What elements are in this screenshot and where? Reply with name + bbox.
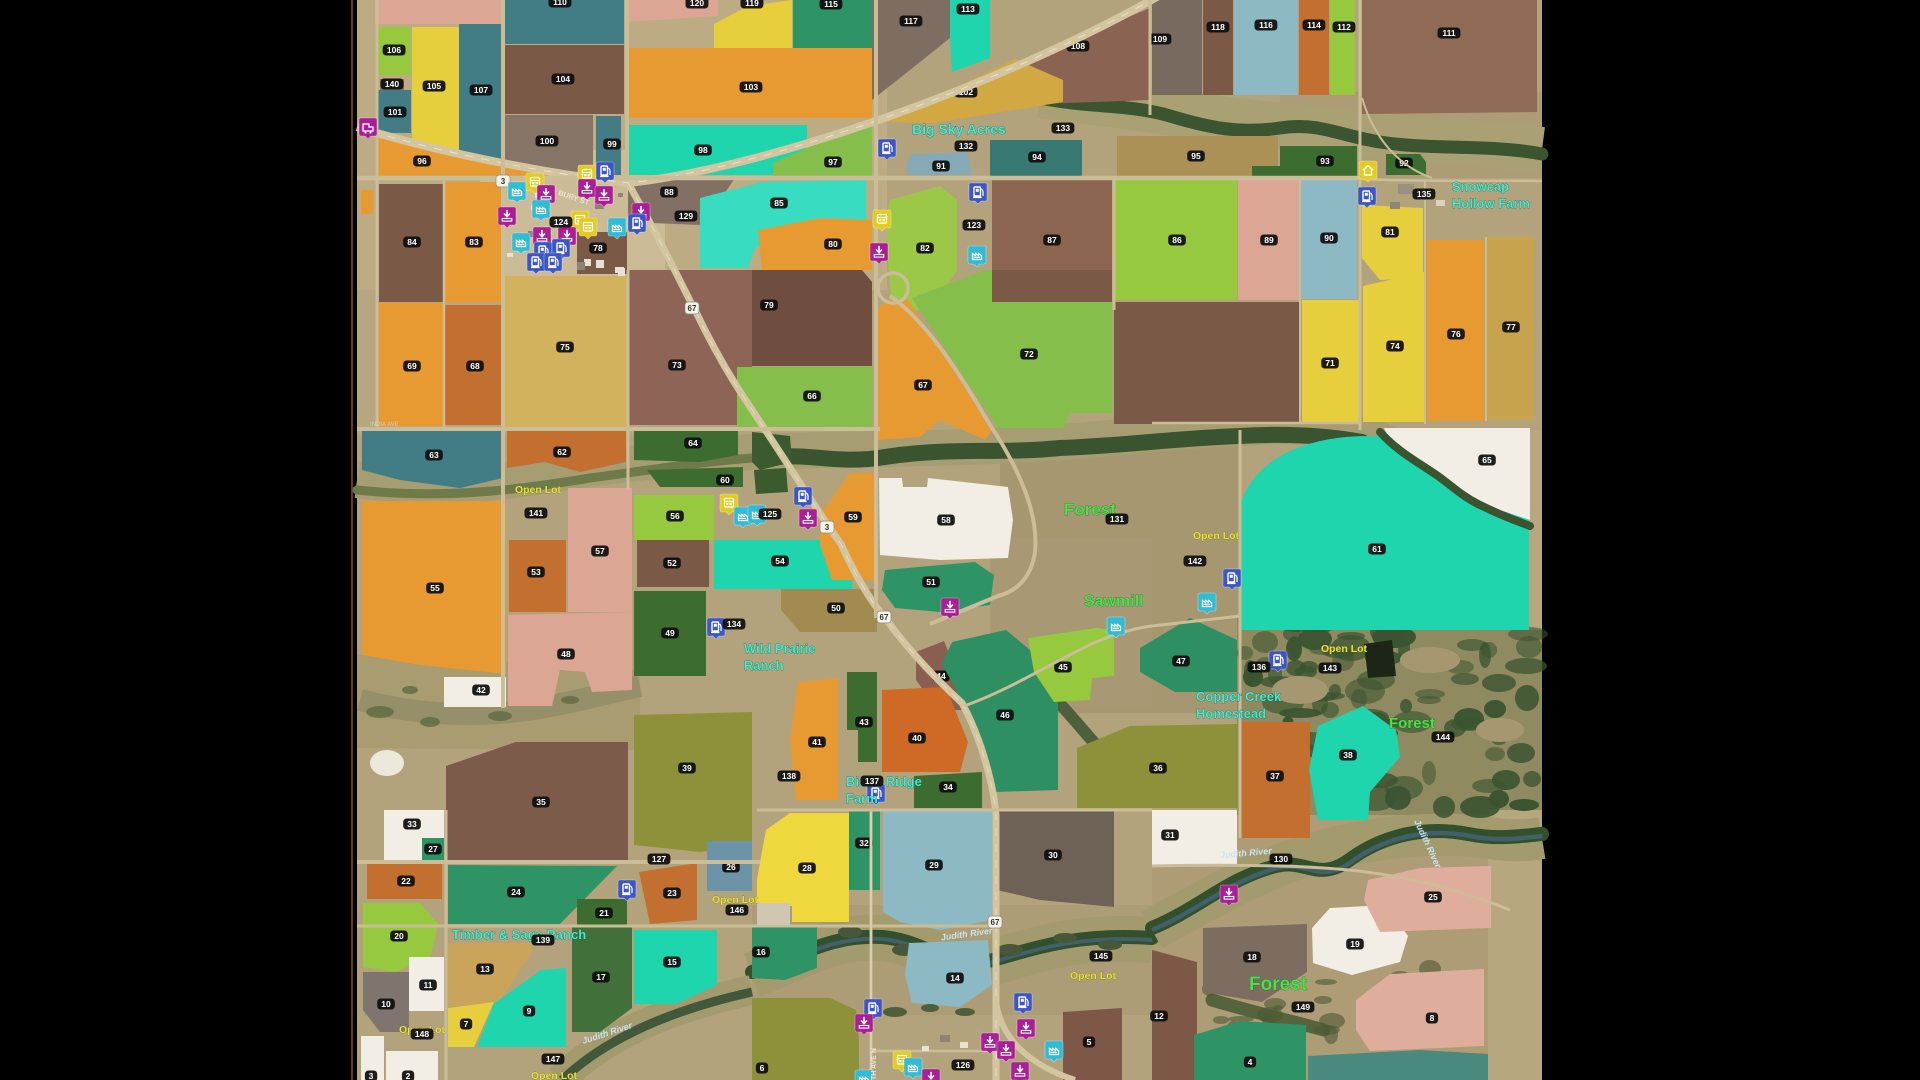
svg-text:120: 120 [690,0,704,8]
svg-text:80: 80 [828,239,838,249]
svg-text:52: 52 [667,558,677,568]
svg-text:83: 83 [469,237,479,247]
svg-text:65: 65 [1482,455,1492,465]
svg-text:132: 132 [959,141,973,151]
svg-text:35: 35 [536,797,546,807]
svg-text:138: 138 [782,771,796,781]
svg-text:149: 149 [1296,1002,1310,1012]
svg-text:22: 22 [401,876,411,886]
svg-text:45: 45 [1058,662,1068,672]
svg-text:76: 76 [1451,329,1461,339]
svg-text:69: 69 [407,361,417,371]
svg-text:25: 25 [1428,892,1438,902]
svg-text:134: 134 [727,619,741,629]
svg-text:3: 3 [501,177,506,186]
svg-text:133: 133 [1056,123,1070,133]
svg-text:82: 82 [920,243,930,253]
svg-text:74: 74 [1390,341,1400,351]
svg-text:62: 62 [557,447,567,457]
svg-text:Open Lot: Open Lot [515,484,562,496]
svg-text:Wild Prairie: Wild Prairie [744,641,815,656]
svg-text:28: 28 [802,863,812,873]
svg-text:11: 11 [424,980,433,990]
svg-text:18: 18 [1247,952,1257,962]
svg-text:81: 81 [1385,227,1395,237]
svg-text:106: 106 [387,45,401,55]
svg-text:85: 85 [774,198,784,208]
svg-text:33: 33 [407,819,417,829]
svg-text:126: 126 [956,1060,970,1070]
svg-text:5: 5 [1087,1037,1092,1047]
svg-text:61: 61 [1372,544,1382,554]
svg-text:42: 42 [476,685,486,695]
svg-text:Bison Ridge: Bison Ridge [846,774,922,789]
svg-text:64: 64 [688,438,698,448]
svg-text:Open Lot: Open Lot [1321,643,1368,655]
svg-text:23: 23 [667,888,677,898]
svg-text:4TH AVE N: 4TH AVE N [871,1048,878,1080]
svg-text:6: 6 [760,1063,765,1073]
svg-text:Forest: Forest [1249,974,1308,995]
svg-text:36: 36 [1153,763,1163,773]
svg-text:93: 93 [1320,156,1330,166]
svg-text:30: 30 [1048,850,1058,860]
svg-text:Sawmill: Sawmill [1084,593,1144,610]
svg-text:94: 94 [1032,152,1042,162]
svg-text:145: 145 [1094,951,1108,961]
svg-text:39: 39 [682,763,692,773]
svg-text:67: 67 [688,304,697,313]
svg-text:31: 31 [1165,830,1175,840]
svg-text:4: 4 [1248,1057,1253,1067]
svg-text:3: 3 [825,523,830,532]
svg-text:27: 27 [428,844,438,854]
svg-text:115: 115 [824,0,838,9]
svg-text:16: 16 [756,947,766,957]
svg-text:141: 141 [529,508,543,518]
svg-text:129: 129 [679,211,693,221]
svg-text:13: 13 [480,964,490,974]
svg-text:49: 49 [665,628,675,638]
svg-text:43: 43 [859,717,869,727]
svg-text:67: 67 [991,918,1000,927]
svg-text:Open Lot: Open Lot [1193,530,1240,542]
svg-text:100: 100 [540,136,554,146]
svg-text:68: 68 [470,361,480,371]
svg-text:98: 98 [698,145,708,155]
svg-text:71: 71 [1325,358,1335,368]
svg-text:Forest: Forest [1389,715,1435,732]
svg-text:148: 148 [415,1029,429,1039]
svg-text:84: 84 [407,237,417,247]
svg-text:105: 105 [427,81,441,91]
svg-text:124: 124 [554,217,568,227]
svg-text:Ranch: Ranch [744,658,784,673]
svg-text:107: 107 [474,85,488,95]
svg-text:58: 58 [941,515,951,525]
svg-text:15: 15 [667,957,677,967]
svg-text:110: 110 [553,0,567,7]
svg-text:47: 47 [1176,656,1186,666]
svg-text:21: 21 [599,908,609,918]
svg-text:67: 67 [918,380,928,390]
svg-text:57: 57 [595,546,605,556]
svg-text:103: 103 [744,82,758,92]
svg-text:104: 104 [556,74,570,84]
svg-text:12: 12 [1154,1011,1164,1021]
svg-text:46: 46 [1000,710,1010,720]
svg-text:34: 34 [943,782,953,792]
svg-text:INDIA AVE: INDIA AVE [370,422,399,428]
svg-text:137: 137 [865,776,879,786]
svg-text:114: 114 [1307,20,1321,30]
svg-text:Open Lot: Open Lot [531,1070,578,1080]
svg-text:Farm: Farm [846,791,878,806]
svg-text:79: 79 [764,300,774,310]
svg-text:135: 135 [1417,189,1431,199]
svg-text:116: 116 [1259,20,1273,30]
svg-text:96: 96 [417,156,427,166]
svg-text:Timber & Sage Ranch: Timber & Sage Ranch [452,927,586,942]
svg-text:97: 97 [828,157,838,167]
svg-text:117: 117 [904,16,918,26]
svg-text:72: 72 [1024,349,1034,359]
svg-text:78: 78 [593,243,603,253]
svg-text:51: 51 [926,577,936,587]
svg-text:131: 131 [1110,514,1124,524]
svg-text:37: 37 [1270,771,1280,781]
svg-text:136: 136 [1252,662,1266,672]
svg-text:50: 50 [831,603,841,613]
svg-text:60: 60 [720,475,730,485]
svg-text:101: 101 [388,107,402,117]
svg-text:9: 9 [527,1006,532,1016]
svg-text:7: 7 [464,1019,469,1029]
svg-text:3: 3 [369,1071,374,1080]
svg-text:Open Lot: Open Lot [1070,970,1117,982]
svg-text:89: 89 [1264,235,1274,245]
svg-text:Hollow Farm: Hollow Farm [1452,196,1530,211]
svg-text:91: 91 [936,161,946,171]
svg-text:10: 10 [381,999,391,1009]
svg-text:140: 140 [385,79,399,89]
svg-text:139: 139 [536,935,550,945]
svg-text:Homestead: Homestead [1196,706,1266,721]
svg-text:127: 127 [652,854,666,864]
svg-text:63: 63 [429,450,439,460]
svg-text:53: 53 [531,567,541,577]
svg-text:20: 20 [394,931,404,941]
svg-text:119: 119 [745,0,759,8]
svg-text:Copper Creek: Copper Creek [1196,689,1282,704]
svg-text:147: 147 [546,1054,560,1064]
svg-text:73: 73 [672,360,682,370]
svg-text:99: 99 [607,139,617,149]
svg-text:146: 146 [730,905,744,915]
svg-text:77: 77 [1506,322,1516,332]
svg-text:40: 40 [912,733,922,743]
svg-text:86: 86 [1172,235,1182,245]
svg-text:32: 32 [859,838,869,848]
svg-text:41: 41 [812,737,822,747]
svg-text:113: 113 [961,4,975,14]
svg-text:123: 123 [967,220,981,230]
svg-text:90: 90 [1324,233,1334,243]
svg-text:95: 95 [1191,151,1201,161]
svg-text:17: 17 [596,972,606,982]
svg-text:29: 29 [929,860,939,870]
svg-text:24: 24 [511,887,521,897]
svg-text:87: 87 [1047,235,1057,245]
svg-text:2: 2 [406,1071,411,1080]
svg-text:14: 14 [950,973,960,983]
svg-text:143: 143 [1323,663,1337,673]
svg-text:75: 75 [560,342,570,352]
svg-text:67: 67 [880,613,889,622]
svg-text:38: 38 [1343,750,1353,760]
svg-text:55: 55 [430,583,440,593]
svg-text:144: 144 [1436,732,1450,742]
svg-text:66: 66 [807,391,817,401]
svg-text:112: 112 [1337,22,1351,32]
svg-text:54: 54 [775,556,785,566]
svg-text:59: 59 [848,512,858,522]
svg-text:19: 19 [1350,939,1360,949]
svg-text:118: 118 [1211,22,1225,32]
svg-text:111: 111 [1442,28,1456,38]
svg-text:Big Sky Acres: Big Sky Acres [912,121,1006,137]
svg-text:142: 142 [1188,556,1202,566]
svg-text:48: 48 [561,649,571,659]
svg-text:109: 109 [1153,34,1167,44]
svg-text:Snowcap: Snowcap [1452,179,1509,194]
svg-text:56: 56 [670,511,680,521]
svg-text:125: 125 [763,509,777,519]
svg-text:8: 8 [1430,1013,1435,1023]
svg-text:88: 88 [664,187,674,197]
svg-text:130: 130 [1274,854,1288,864]
